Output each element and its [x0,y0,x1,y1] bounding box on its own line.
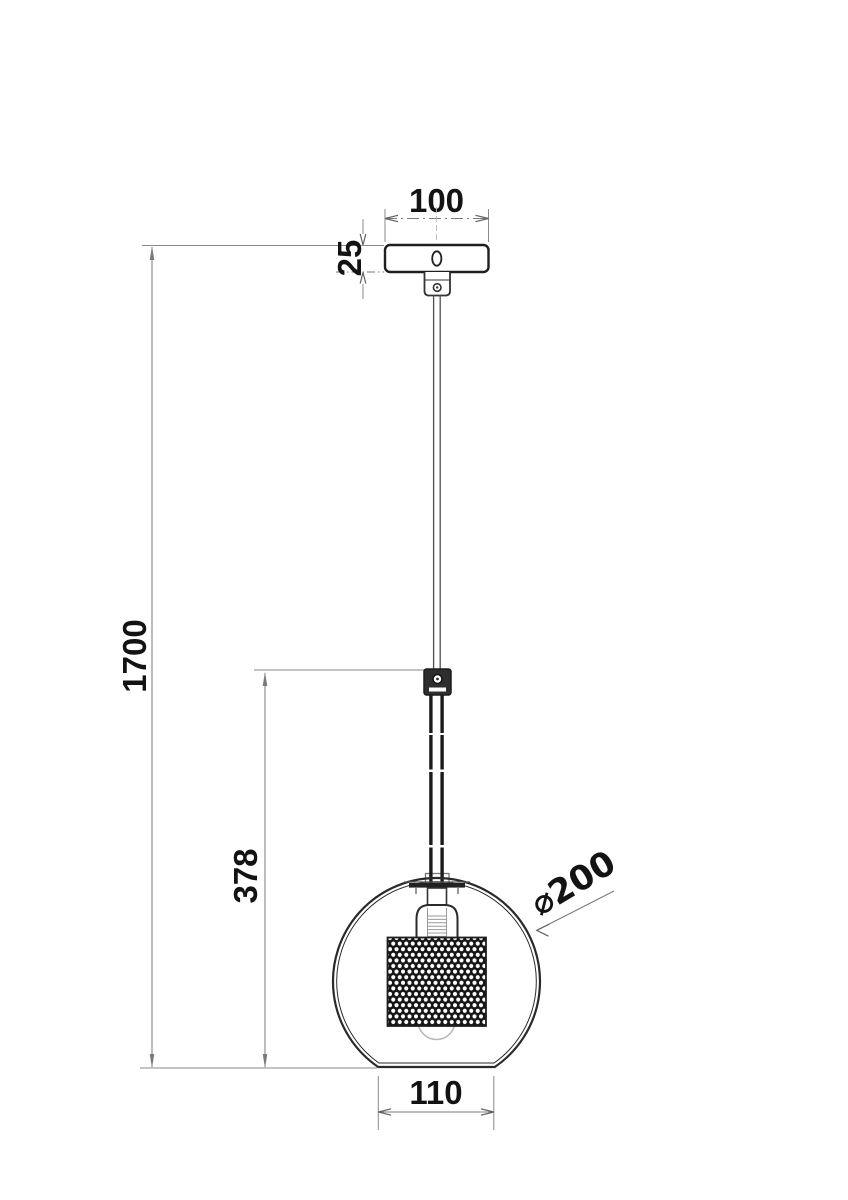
lamp-socket [417,888,458,941]
dim-label-canopy-width: 100 [409,182,464,219]
pendant-lamp [333,207,540,1067]
socket-neck [428,888,447,906]
dim-label-overall-height: 1700 [116,619,153,692]
rod-line-left [429,695,432,884]
ceiling-canopy [385,207,489,272]
dimension-annotations: 1700 378 100 25 [116,182,623,1130]
dimension-canopy-height: 25 [331,219,384,299]
canopy-hole [432,251,441,265]
mid-cord-connector [424,669,451,695]
grip-screw-dot [436,286,438,288]
flange-disc [409,883,465,888]
rod-line-right [440,695,443,884]
pendant-lamp-technical-drawing: 1700 378 100 25 [0,0,848,1200]
rod-joint-2 [428,770,446,773]
dimension-shade-diameter: ⌀200 [524,843,623,936]
connector-screw-dot [436,678,439,681]
dimension-bottom-opening: 110 [378,1074,494,1130]
arrow-down-icon [150,1054,155,1068]
arrow-leader-icon [537,924,550,936]
connector-slot [429,688,446,692]
rod-joint-1 [428,733,446,735]
canopy-cord-grip [425,272,451,296]
dim-label-cable-drop: 378 [227,848,264,903]
perforated-diffuser [388,938,487,1027]
arrow-up-icon [150,246,155,260]
suspension-cable-upper [434,296,441,670]
technical-drawing-canvas: 1700 378 100 25 [0,0,848,1200]
arrow-down-icon [263,1054,268,1068]
dim-label-bottom-opening: 110 [409,1074,462,1111]
arrow-up-icon [263,672,268,686]
dim-label-canopy-height: 25 [331,240,368,277]
rod-joint-3 [428,845,446,848]
suspension-rod-lower [426,695,450,884]
